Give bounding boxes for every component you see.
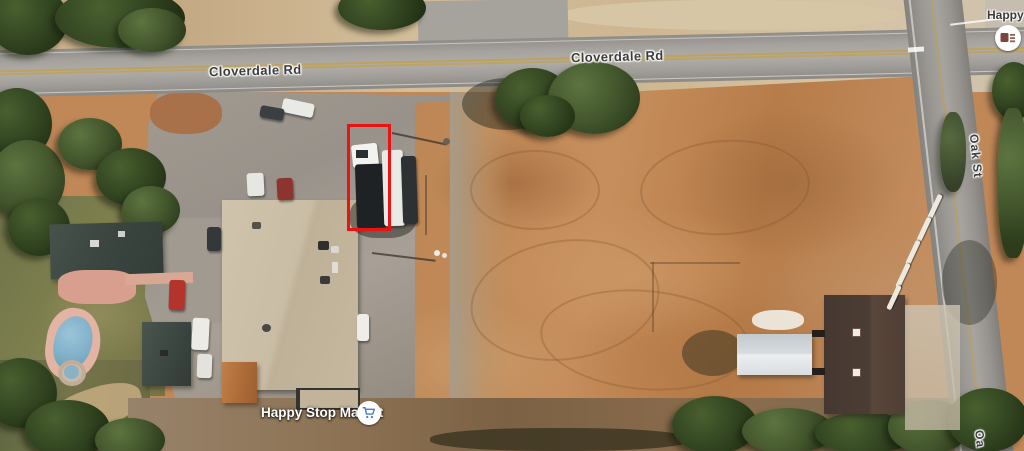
rooftop-unit: [332, 262, 338, 273]
light-pole: [443, 138, 450, 145]
white-car: [197, 354, 213, 379]
building-annex: [812, 368, 825, 375]
annotation-rectangle: [347, 124, 391, 231]
shed-roof: [222, 362, 257, 403]
roof-vent: [118, 231, 125, 237]
tree: [118, 8, 186, 52]
road-label-cloverdale-east: Cloverdale Rd: [571, 48, 664, 65]
road-label-cloverdale-west: Cloverdale Rd: [209, 62, 302, 79]
store-icon[interactable]: [995, 25, 1021, 51]
fence-line: [652, 262, 654, 332]
white-van: [191, 318, 210, 351]
rooftop-unit: [252, 222, 261, 229]
tree: [998, 108, 1024, 258]
hot-tub-water: [64, 365, 79, 379]
white-car: [357, 314, 369, 341]
tree-shadow: [430, 428, 690, 451]
driveway-east: [905, 305, 960, 430]
metal-building-roof: [737, 334, 812, 375]
red-car: [276, 178, 293, 201]
fence-line: [650, 262, 740, 264]
rooftop-unit: [262, 324, 271, 332]
dirt-patch: [150, 92, 222, 134]
gravel-pile: [752, 310, 804, 330]
road-centerline: [0, 49, 1024, 76]
road-label-oak-partial: Oa: [972, 429, 988, 448]
building-shadow: [682, 330, 744, 376]
tree: [940, 112, 966, 192]
tree: [520, 95, 575, 137]
light-pole: [434, 250, 440, 256]
tire-tracks: [470, 150, 600, 230]
white-car: [246, 173, 264, 197]
dark-trailer: [401, 156, 418, 224]
skylight: [852, 368, 861, 377]
dirt-patch: [560, 0, 900, 30]
rooftop-unit: [318, 241, 329, 250]
rooftop-unit: [320, 276, 330, 284]
building-annex: [812, 330, 825, 337]
driveway-north: [418, 0, 569, 41]
shopping-cart-icon[interactable]: [357, 401, 381, 425]
brown-building-roof: [824, 295, 905, 414]
roof-vent: [90, 240, 99, 247]
roof-vent: [160, 350, 168, 356]
light-pole: [442, 253, 447, 258]
poi-label-happy-partial[interactable]: Happy: [987, 8, 1024, 22]
pole-shadow: [425, 175, 427, 235]
satellite-map: Cloverdale Rd Cloverdale Rd Oak St Oa Ha…: [0, 0, 1024, 451]
skylight: [852, 328, 861, 337]
rooftop-unit: [331, 246, 339, 253]
red-car: [168, 280, 185, 311]
dark-car: [207, 227, 221, 251]
